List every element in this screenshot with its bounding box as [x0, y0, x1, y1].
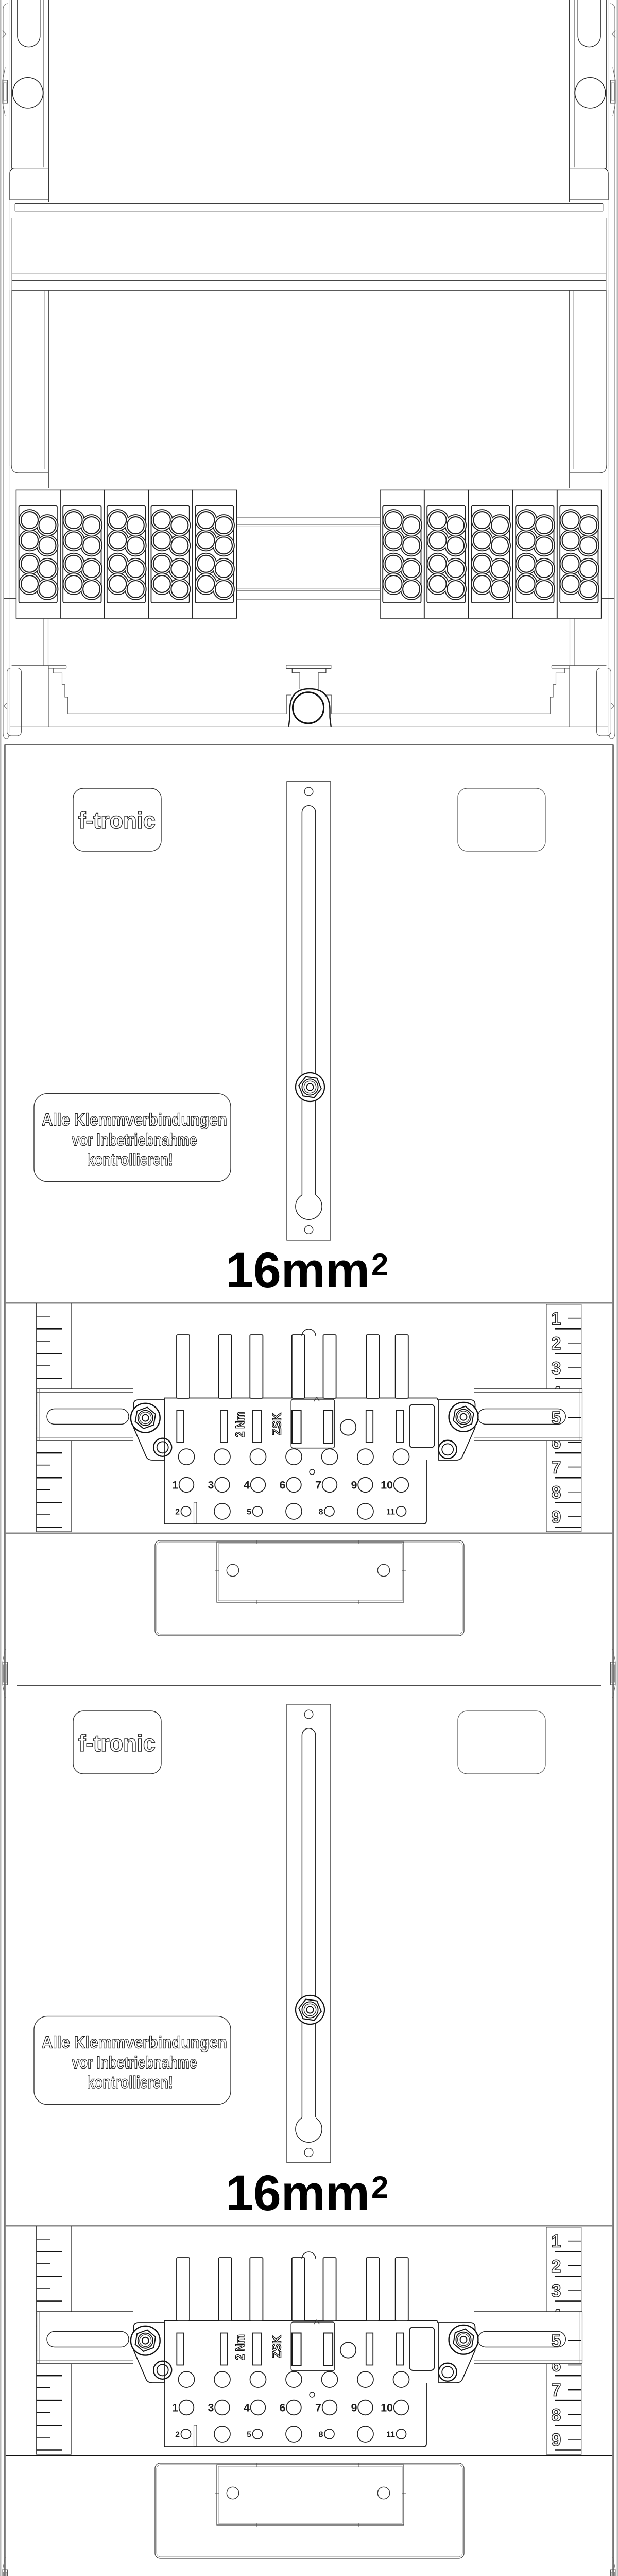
svg-text:3: 3 — [552, 1359, 561, 1378]
svg-text:2 Nm: 2 Nm — [233, 1412, 247, 1437]
svg-text:9: 9 — [351, 2402, 357, 2414]
svg-text:8: 8 — [552, 1483, 561, 1502]
svg-text:3: 3 — [208, 1479, 214, 1492]
svg-text:10: 10 — [381, 1479, 393, 1492]
svg-text:6: 6 — [280, 2402, 286, 2414]
svg-text:9: 9 — [552, 2430, 561, 2450]
svg-text:9: 9 — [552, 1507, 561, 1527]
svg-text:3: 3 — [552, 2281, 561, 2301]
svg-text:1: 1 — [172, 2402, 178, 2414]
svg-text:4: 4 — [244, 1479, 250, 1492]
svg-text:11: 11 — [386, 2431, 395, 2439]
svg-text:Alle Klemmverbindungen: Alle Klemmverbindungen — [42, 1110, 227, 1129]
svg-text:f-tronic: f-tronic — [78, 1730, 156, 1756]
svg-text:11: 11 — [386, 1508, 395, 1517]
svg-text:8: 8 — [319, 2431, 323, 2439]
svg-text:kontrollieren!: kontrollieren! — [87, 2073, 173, 2092]
svg-text:vor Inbetriebnahme: vor Inbetriebnahme — [72, 1130, 197, 1149]
svg-text:7: 7 — [552, 2381, 561, 2400]
svg-text:8: 8 — [319, 1508, 323, 1517]
svg-text:3: 3 — [208, 2402, 214, 2414]
svg-text:5: 5 — [552, 1408, 561, 1428]
svg-text:5: 5 — [552, 2331, 561, 2350]
svg-text:1: 1 — [552, 1309, 561, 1329]
svg-text:2: 2 — [371, 1247, 388, 1282]
svg-text:2 Nm: 2 Nm — [233, 2334, 247, 2360]
svg-text:7: 7 — [552, 1458, 561, 1478]
svg-text:2: 2 — [371, 2170, 388, 2205]
svg-text:1: 1 — [172, 1479, 178, 1492]
svg-text:4: 4 — [244, 2402, 250, 2414]
svg-text:2: 2 — [552, 2257, 561, 2276]
svg-text:f-tronic: f-tronic — [78, 807, 156, 834]
svg-text:vor Inbetriebnahme: vor Inbetriebnahme — [72, 2053, 197, 2072]
svg-text:ZSK: ZSK — [270, 2335, 284, 2358]
svg-text:7: 7 — [315, 2402, 321, 2414]
svg-text:ZSK: ZSK — [270, 1412, 284, 1435]
svg-text:5: 5 — [247, 2431, 251, 2439]
svg-text:Alle Klemmverbindungen: Alle Klemmverbindungen — [42, 2032, 227, 2052]
svg-text:16mm: 16mm — [226, 2165, 370, 2221]
svg-text:6: 6 — [280, 1479, 286, 1492]
svg-text:8: 8 — [552, 2405, 561, 2425]
svg-text:16mm: 16mm — [226, 1242, 370, 1298]
svg-text:2: 2 — [175, 1508, 180, 1517]
svg-text:kontrollieren!: kontrollieren! — [87, 1150, 173, 1169]
svg-text:1: 1 — [552, 2232, 561, 2251]
svg-text:7: 7 — [315, 1479, 321, 1492]
svg-text:9: 9 — [351, 1479, 357, 1492]
svg-text:5: 5 — [247, 1508, 251, 1517]
svg-text:2: 2 — [175, 2431, 180, 2439]
svg-text:2: 2 — [552, 1334, 561, 1353]
svg-text:10: 10 — [381, 2402, 393, 2414]
